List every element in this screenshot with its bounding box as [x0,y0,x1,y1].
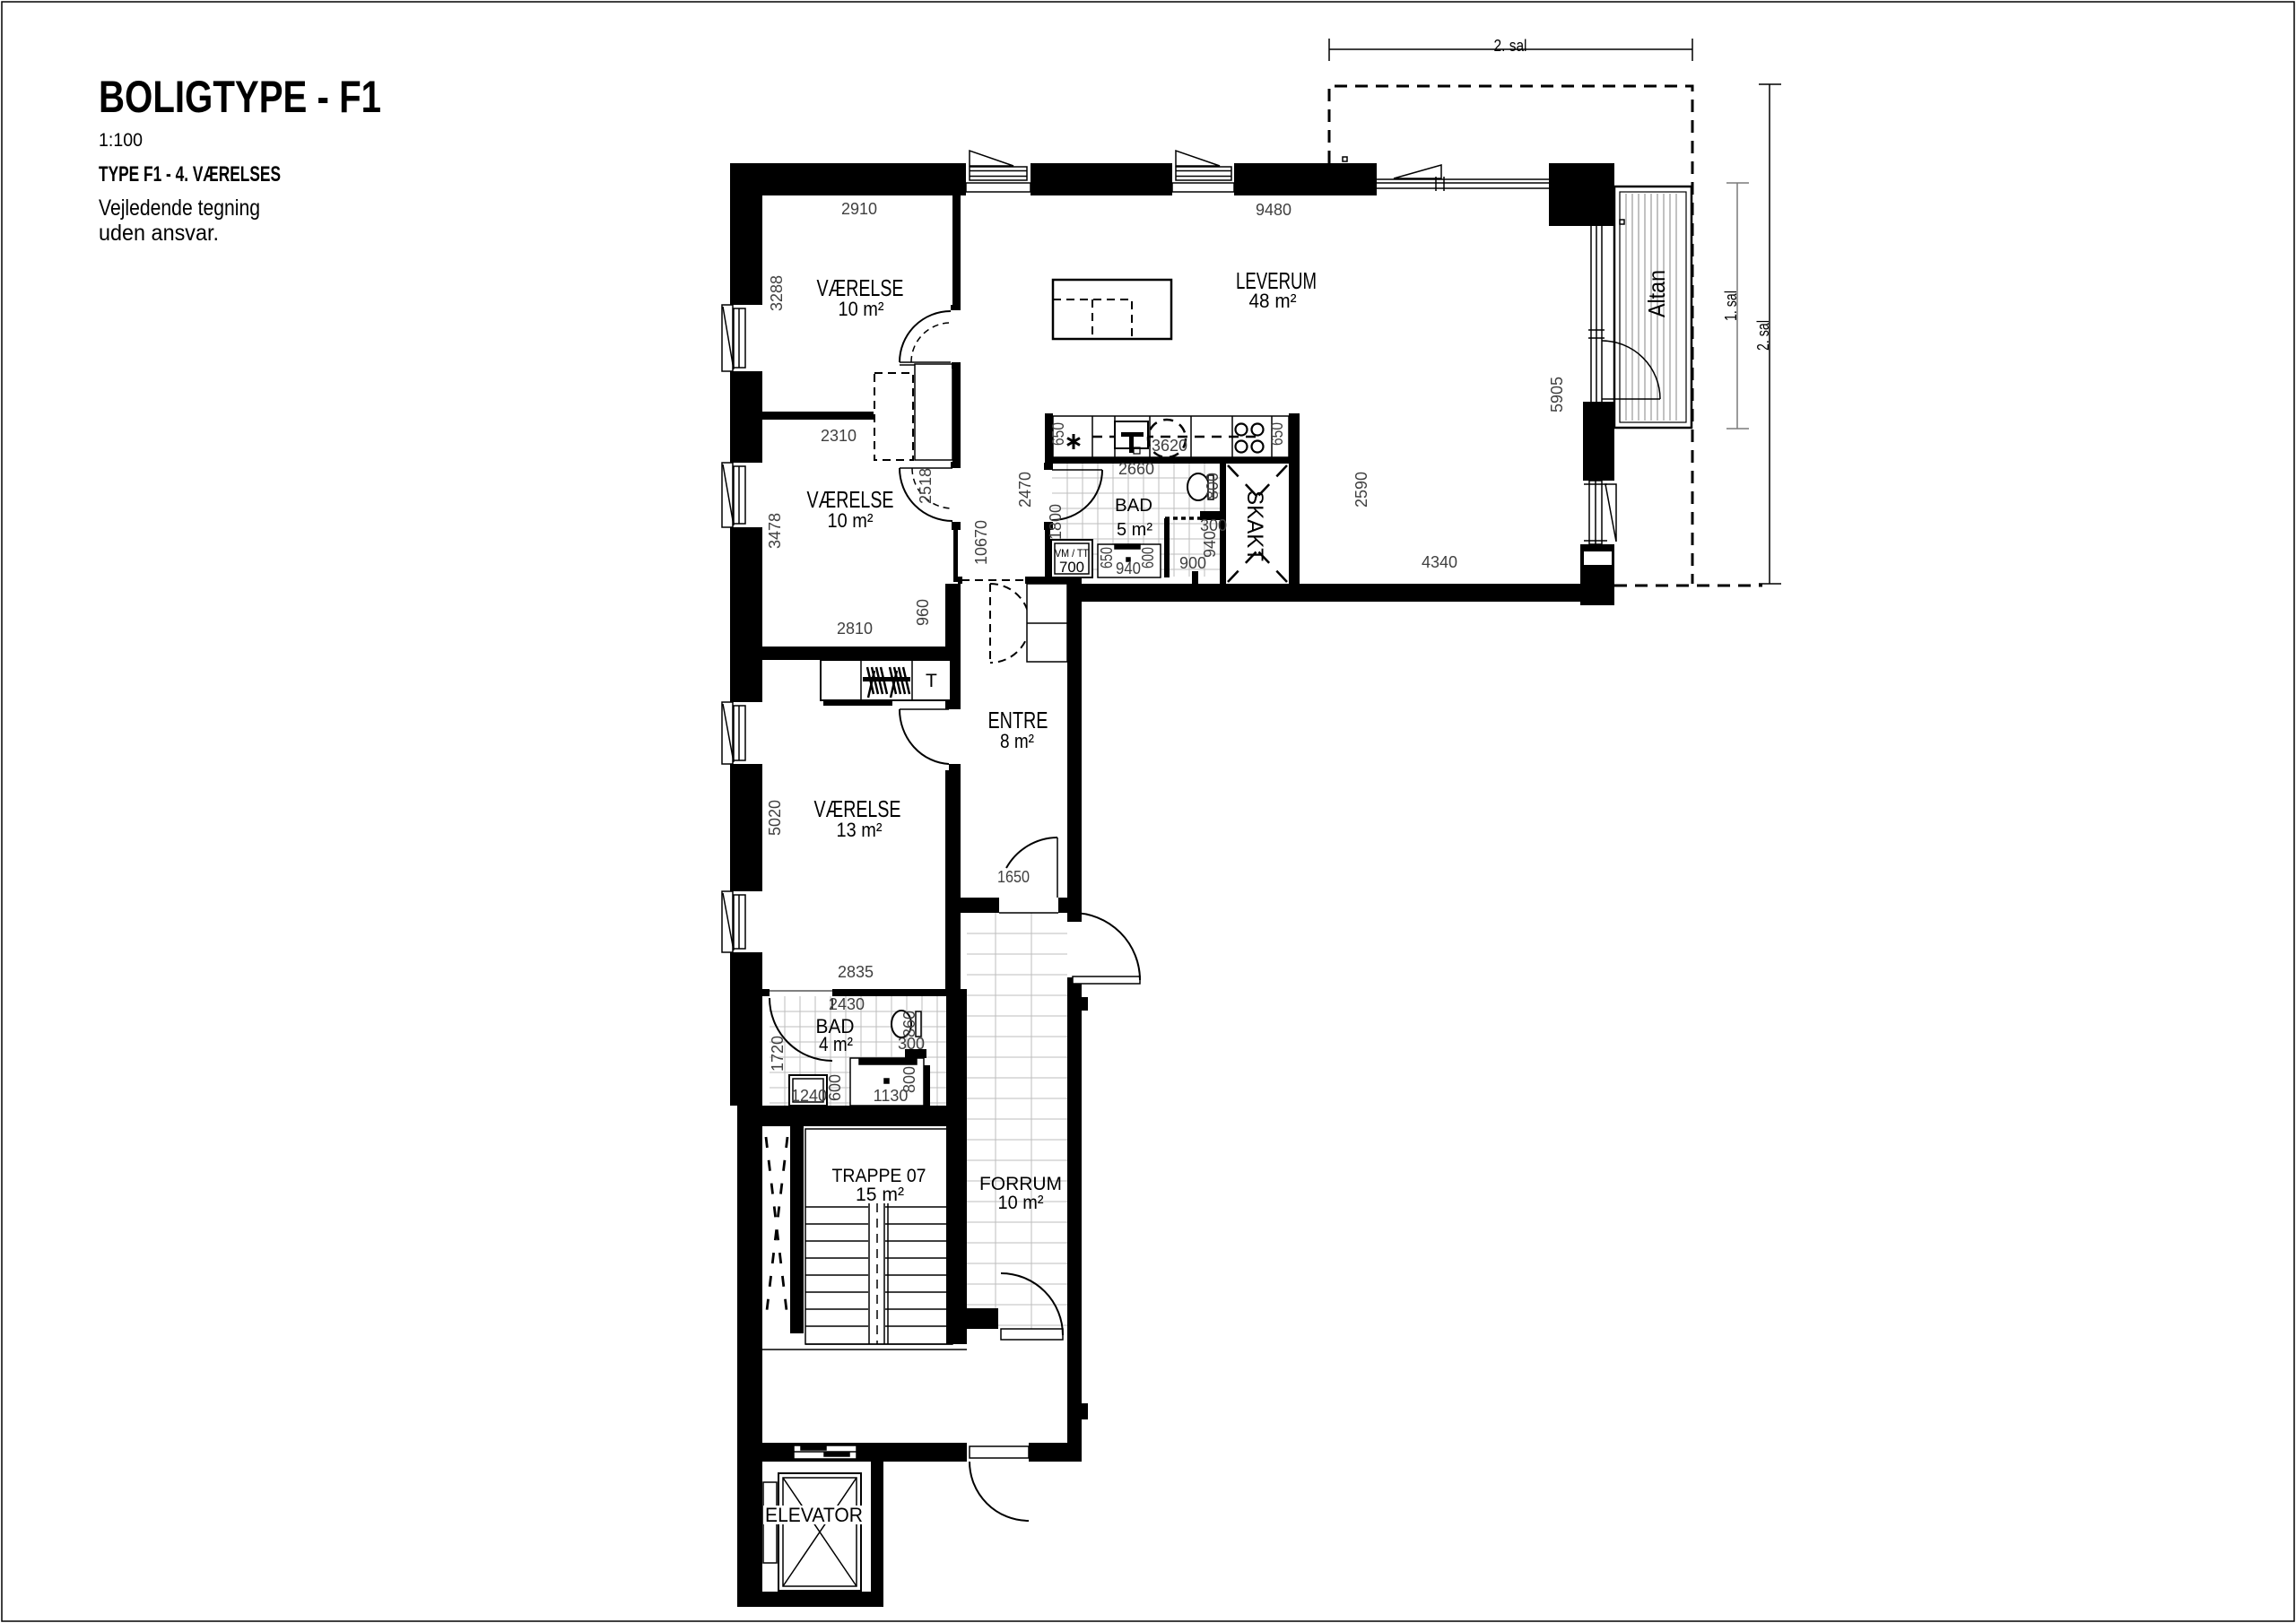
svg-text:ELEVATOR: ELEVATOR [765,1504,863,1526]
svg-text:4340: 4340 [1422,553,1457,571]
svg-text:1. sal: 1. sal [1722,291,1740,321]
svg-text:3478: 3478 [766,513,784,549]
svg-text:1240: 1240 [791,1087,827,1105]
svg-text:600: 600 [1139,547,1157,568]
svg-text:650: 650 [1049,422,1067,446]
svg-text:2. sal: 2. sal [1754,320,1772,351]
svg-text:5905: 5905 [1548,377,1566,412]
svg-text:10 m²: 10 m² [839,298,884,320]
svg-text:3620: 3620 [1152,437,1187,455]
svg-text:300: 300 [898,1035,925,1053]
svg-text:1800: 1800 [1047,504,1065,540]
svg-text:48 m²: 48 m² [1249,290,1297,312]
svg-text:900: 900 [1179,554,1206,572]
svg-text:860: 860 [900,1011,918,1037]
svg-text:5 m²: 5 m² [1117,520,1152,540]
svg-text:1650: 1650 [997,868,1030,886]
svg-text:9480: 9480 [1256,201,1291,219]
svg-text:13 m²: 13 m² [837,819,883,841]
svg-text:2430: 2430 [829,995,865,1013]
svg-text:2518: 2518 [917,468,935,504]
svg-text:2590: 2590 [1352,472,1370,508]
svg-text:2835: 2835 [838,963,874,981]
svg-text:2910: 2910 [841,200,877,218]
svg-text:4 m²: 4 m² [819,1033,853,1055]
svg-text:SKAKT: SKAKT [1242,490,1267,561]
svg-text:BAD: BAD [1115,496,1152,516]
svg-text:FORRUM: FORRUM [979,1174,1062,1194]
svg-text:5020: 5020 [766,800,784,836]
svg-text:2810: 2810 [837,620,873,638]
svg-text:2. sal: 2. sal [1494,37,1527,55]
svg-text:10 m²: 10 m² [998,1193,1044,1213]
svg-text:Vejledende tegning: Vejledende tegning [99,195,260,221]
svg-text:800: 800 [900,1066,918,1093]
svg-text:700: 700 [1059,559,1084,576]
svg-text:1720: 1720 [769,1036,787,1072]
svg-text:650: 650 [1268,422,1286,446]
svg-text:BOLIGTYPE - F1: BOLIGTYPE - F1 [99,72,381,122]
svg-text:3288: 3288 [768,275,786,311]
svg-text:2310: 2310 [821,427,857,445]
svg-text:2470: 2470 [1016,472,1034,508]
svg-text:800: 800 [1204,473,1222,499]
svg-text:15 m²: 15 m² [856,1185,904,1205]
svg-text:1:100: 1:100 [99,130,143,151]
svg-text:600: 600 [826,1074,844,1101]
svg-text:TRAPPE 07: TRAPPE 07 [832,1166,926,1186]
svg-text:TYPE F1 - 4. VÆRELSES: TYPE F1 - 4. VÆRELSES [99,162,281,187]
svg-text:960: 960 [914,599,932,626]
svg-text:2660: 2660 [1118,460,1154,478]
svg-text:8 m²: 8 m² [1000,730,1034,752]
svg-text:940: 940 [1116,560,1141,577]
svg-text:10670: 10670 [972,520,990,565]
svg-text:uden ansvar.: uden ansvar. [99,221,219,246]
svg-text:10 m²: 10 m² [828,509,874,532]
svg-text:650: 650 [1098,547,1116,568]
svg-text:Altan: Altan [1643,270,1670,317]
svg-text:T: T [926,671,937,691]
svg-text:VM / TT: VM / TT [1055,547,1090,560]
